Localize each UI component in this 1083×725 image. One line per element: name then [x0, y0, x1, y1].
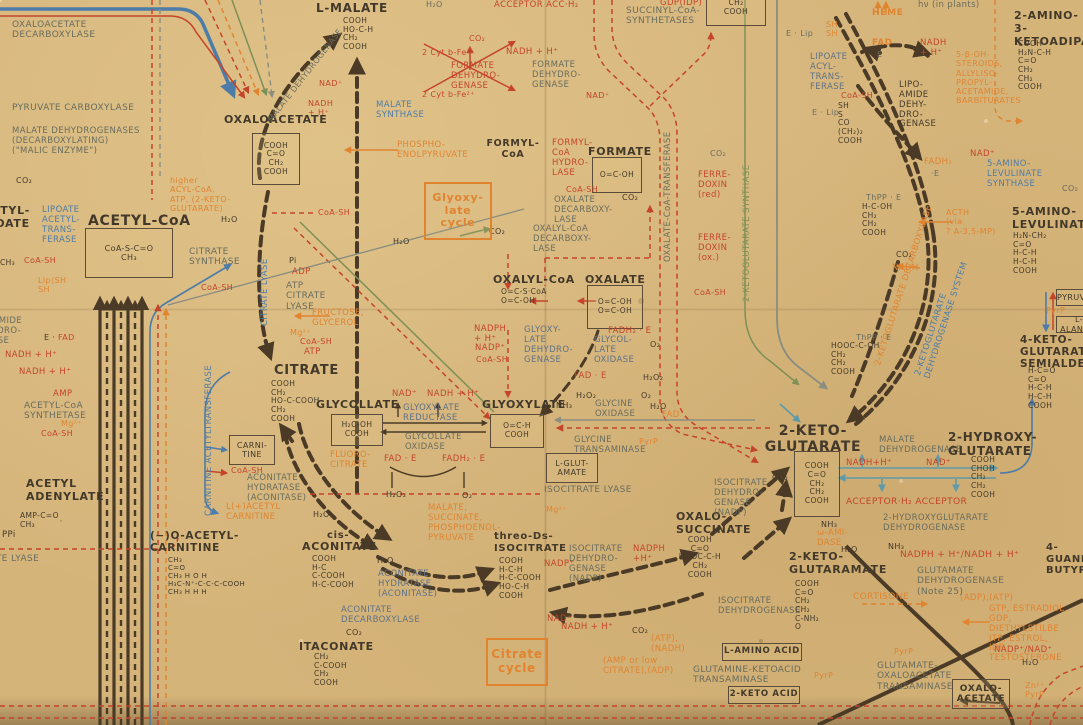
- lipoate-acyltransferase: LIPOATE ACYL- TRANS- FERASE: [810, 53, 847, 92]
- acetyl-adenylate-heading: ACETYL ADENYLATE: [26, 478, 104, 504]
- mg-isocitrate-lyase: Mg²⁺: [546, 505, 567, 514]
- nadh-left-edge: NADH + H⁺: [5, 351, 57, 361]
- acceptor-h2-acceptor: ACCEPTOR·H₂ ACCEPTOR: [846, 497, 967, 507]
- l-malate-formula: COOH HO-C-H CH₂ COOH: [343, 17, 373, 52]
- lipoamide-dehydrogenase-right: LIPO- AMIDE DEHY- DRO- GENASE: [899, 81, 936, 130]
- pyrp-glycine-t: PyrP: [639, 437, 658, 446]
- bundle-dashed: [107, 303, 135, 725]
- h2o-top: H₂O: [426, 0, 443, 9]
- formate-dehydrogenase-gray: FORMATE DEHYDRO- GENASE: [532, 61, 581, 91]
- e-lip-formula-label: E · Lip: [812, 108, 839, 117]
- nh3-glyoxylate: NH₃: [556, 401, 572, 410]
- glutamine-ketoacid-transaminase: GLUTAMINE-KETOACID TRANSAMINASE: [693, 665, 801, 686]
- keto-acid-box: 2-KETO ACID: [728, 686, 800, 704]
- atp-acl: ATP: [304, 348, 321, 358]
- citrate-formula: COOH CH₂ HO-C-COOH CH₂ COOH: [271, 380, 320, 423]
- nadph-glyox-dh: NADPH + H⁺: [474, 325, 506, 345]
- malate-dehydrogenases: MALATE DEHYDROGENASES (DECARBOXYLATING) …: [12, 127, 140, 157]
- carnitine-acetyltransferase: CARNITINE ACETYLTRANSFERASE: [205, 365, 215, 516]
- citrate-lyase-bottom: CITRATE LYASE: [0, 554, 39, 564]
- fructose-glycerol: FRUCTOSE, GLYCEROL: [312, 309, 364, 329]
- pyrp-right-edge: PyrP: [1046, 306, 1065, 315]
- acetyl-lipoate-heading: ACETYL- LIPOATE: [0, 205, 30, 231]
- citrate-synthase: CITRATE SYNTHASE: [189, 247, 240, 268]
- heme: HEME: [872, 8, 904, 18]
- carnitine-box: CARNI- TINE: [229, 435, 275, 465]
- fad-glycollate-ox2: FAD · E: [574, 372, 607, 382]
- zn-pyrp: Zn²⁺ PyrP: [1025, 681, 1045, 700]
- h2o-citrate-synthase: H₂O: [221, 215, 238, 224]
- ferredoxin-ox: FERRE- DOXIN (ox.): [698, 234, 731, 264]
- oxalyl-coa-formula: O=C-S·CoA O=C-OH: [501, 288, 547, 305]
- ferredoxin-red: FERRE- DOXIN (red): [698, 171, 731, 201]
- nadh-lipoamide: NADH + H⁺: [920, 39, 947, 59]
- amp-citrate-modifier: (AMP or low CITRATE),(ADP): [603, 657, 674, 677]
- co2-idh: CO₂: [632, 626, 648, 635]
- citrate-cycle-label: Citrate cycle: [486, 638, 548, 686]
- e-fad-lipoamide: E: [877, 50, 882, 59]
- nadh-gr: NADH + H⁺: [427, 390, 479, 400]
- coash-acs: CoA-SH: [41, 429, 73, 438]
- hydroxyglutarate-formula: COOH CHOH CH₂ CH₂ COOH: [971, 456, 995, 499]
- coash-ferredoxin: CoA-SH: [694, 288, 726, 297]
- lip-sh-left: Lip⟨SH SH: [38, 276, 66, 295]
- fadh2-go1: FADH₂ · E: [442, 455, 485, 465]
- atp-nadh-modifier: (ATP), (NADH): [651, 635, 685, 655]
- l-glutamate-box: L-GLUT- AMATE: [546, 453, 598, 483]
- l-alanine-box: L-ALANINE: [1056, 316, 1083, 333]
- oxalate-formula: O=C-OH O=C-OH: [587, 285, 643, 329]
- ketoglutarate-formula: COOH C=O CH₂ CH₂ COOH: [794, 451, 840, 517]
- fad-glycine-ox: FAD: [662, 411, 680, 421]
- glutamate-oxaloacetate-transaminase: GLUTAMATE- OXALOACETATE TRANSAMINASE: [877, 661, 953, 692]
- co2-mid: CO₂: [710, 149, 726, 158]
- l-malate-heading: L-MALATE: [316, 2, 388, 16]
- isocitrate-lyase: ISOCITRATE LYASE: [544, 485, 632, 495]
- glyoxylate-reductase: GLYOXYLATE REDUCTASE: [403, 404, 460, 424]
- glyoxylate-cycle-label: Glyoxy- late cycle: [424, 182, 492, 240]
- nad-formate: NAD⁺: [586, 91, 609, 100]
- nadp-nad-bottom: NADP⁺∕NAD⁺: [994, 646, 1052, 656]
- oxalate-coa-transferase: OXALATE-CoA-TRANSFERASE: [664, 132, 674, 262]
- thpp-adduct-formula-2: HOOC-C-OH CH₂ CH₂ COOH: [831, 342, 880, 377]
- nadph-idh2: NADPH +H⁺: [633, 545, 665, 565]
- fadh2-lipoamide: FADH₂: [924, 158, 952, 168]
- co2-os: CO₂: [772, 473, 788, 482]
- glyoxylate-heading: GLYOXYLATE: [482, 399, 566, 412]
- nadp-glyox-dh: NADP⁺: [475, 344, 505, 354]
- fad-lipoamide: FAD: [872, 39, 893, 49]
- nad-malate: NAD⁺: [319, 79, 342, 88]
- itaconate-heading: ITACONATE: [299, 641, 374, 654]
- succinyl-coa-synthetases: SUCCINYL-CoA- SYNTHETASES: [626, 6, 700, 27]
- co2-topleft: CO₂: [16, 176, 32, 185]
- nadh-formate: NADH + H⁺: [506, 48, 558, 58]
- o2-go1: O₂: [462, 491, 472, 500]
- lipoamide-dh-left: LIPOAMIDE DEHYDRO- GENASE: [0, 317, 22, 347]
- co2-ala: CO₂: [1062, 184, 1078, 193]
- fad-go1: FAD · E: [384, 455, 417, 465]
- isocitrate-dh-nadp-1: ISOCITRATE DEHYDRO- GENASE (NADP): [714, 479, 768, 518]
- itaconate-formula: CH₂ C-COOH CH₂ COOH: [314, 653, 347, 688]
- adp-atp-gdh: (ADP),(ATP): [960, 594, 1013, 604]
- glycine-oxidase: GLYCINE OXIDASE: [595, 400, 635, 420]
- ketoglutaramate-heading: 2-KETO- GLUTARAMATE: [789, 551, 887, 577]
- o-acetylcarnitine-heading: (−)O-ACETYL- CARNITINE: [150, 530, 239, 554]
- co2-formate: CO₂: [469, 34, 485, 43]
- isocitrate-formula: COOH H-C-H H-C-COOH HO-C-H COOH: [499, 557, 541, 600]
- oxaloacetate-formula: COOH C=O CH₂ COOH: [252, 133, 300, 185]
- isocitrate-dh-nadp-2: ISOCITRATE DEHYDRO- GENASE (NADP): [569, 545, 623, 584]
- h2o-aconitase1: H₂O: [313, 510, 330, 519]
- cis-aconitate-formula: COOH H-C C-COOH H-C-COOH: [312, 555, 354, 590]
- formyl-coa-hydrolase: FORMYL- CoA HYDRO- LASE: [552, 139, 592, 178]
- carnitine-formula: CH₃ C=O CH₃ H O H H₃C-N⁺-C-C-C-COOH CH₃ …: [168, 556, 245, 597]
- e-lip-formula: SH S CO (CH₂)₂ COOH: [838, 102, 863, 145]
- thpp-adduct-formula: H-C-OH CH₂ CH₂ COOH: [862, 203, 892, 238]
- pyruvate-box: PYRUVATE: [1056, 289, 1083, 306]
- glycollate-oxidase-2: GLYCOL- LATE OXIDASE: [594, 336, 634, 366]
- coash-carnitine: CoA-SH: [231, 466, 263, 475]
- acceptor-acc-h2: ACCEPTOR ACC·H₂: [494, 1, 579, 11]
- glycollate-oxidase-1: GLYCOLLATE OXIDASE: [405, 433, 462, 453]
- ketoglutaramate-formula: COOH C=O CH₂ CH₂ C-NH₂ O: [795, 580, 819, 632]
- ketoglutarate-synthase: 2-KETOGLUTARATE SYNTHASE: [743, 165, 753, 302]
- oxalosuccinate-formula: COOH C=O HOOC-C-H CH₂ COOH: [679, 536, 721, 579]
- pyruvate-carboxylase: PYRUVATE CARBOXYLASE: [12, 103, 134, 113]
- guanidinobutyrate: 4-GUANIDINO- BUTYRATE: [1046, 542, 1083, 577]
- h2o-bottom: H₂O: [1022, 658, 1039, 667]
- coash-glyox: CoA-SH: [318, 208, 350, 217]
- e-fadh2-lipoamide: ·E: [931, 169, 939, 178]
- mg-acs: Mg²⁺: [61, 419, 82, 428]
- threo-isocitrate-heading: threo-Ds- ISOCITRATE: [494, 531, 567, 554]
- amp-acs: AMP: [53, 390, 72, 400]
- h2o2-go1: H₂O₂: [386, 490, 406, 499]
- o2-go2b: O₂: [641, 391, 651, 400]
- fad-left: FAD: [58, 333, 75, 342]
- l-amino-acid-box: L-AMINO ACID: [722, 643, 802, 661]
- h2o-aconitase2: H₂O: [377, 556, 394, 565]
- nadp-idh2: NADP⁺: [544, 560, 574, 570]
- oxaloacetate-decarboxylase: OXALOACETATE DECARBOXYLASE: [12, 20, 95, 41]
- ala-heading: 5-AMINO- LEVULINATE: [1012, 206, 1083, 232]
- pi-acl: Pi: [289, 256, 297, 265]
- nadph-nadh-gdh: NADPH + H⁺∕NADH + H⁺: [900, 550, 1019, 560]
- e-lip-top: E · Lip: [786, 29, 813, 38]
- coash-left: CoA-SH: [24, 256, 56, 265]
- oxalyl-coa-decarboxylase: OXALYL-CoA DECARBOXY- LASE: [533, 225, 591, 255]
- thpp-top: ThPP · E: [866, 193, 902, 202]
- coash-glyox-dh: CoA-SH: [476, 355, 508, 364]
- h2o2-go2a: H₂O₂: [643, 373, 663, 382]
- phosphoenolpyruvate: PHOSPHO- ENOLPYRUVATE: [397, 141, 468, 161]
- biochemical-pathways-chart: OXALOACETATE DECARBOXYLASEPYRUVATE CARBO…: [0, 0, 1083, 725]
- lip-sh-top: SH SH: [826, 20, 838, 39]
- ppi: PPi: [2, 531, 16, 541]
- adp-acl: ADP: [292, 268, 311, 278]
- glycollate-formula: H₂C-OH COOH: [331, 414, 383, 446]
- lipoate-acetyltransferase: LIPOATE ACETYL- TRANS- FERASE: [42, 206, 80, 245]
- nadh-acs: NADH + H⁺: [19, 368, 71, 378]
- citrate-heading: CITRATE: [274, 363, 339, 378]
- o2-go2: O₂: [650, 340, 660, 349]
- acetyl-coa-formula: CoA-S-C=O CH₃: [85, 228, 173, 278]
- hydroxyglutarate-dh: 2-HYDROXYGLUTARATE DEHYDROGENASE: [883, 514, 989, 534]
- pyrp-got2: PyrP: [814, 671, 833, 680]
- acetyl-adenylate-formula: AMP-C=O CH₃: [20, 512, 59, 529]
- aconitase-1: ACONITATE HYDRATASE (ACONITASE): [247, 474, 306, 504]
- hv-in-plants: hν (in plants): [918, 1, 980, 11]
- coash-lipoamide: CoA-SH: [841, 91, 873, 100]
- fluoro-citrate: FLUORO- CITRATE: [330, 451, 371, 471]
- glycollate-heading: GLYCOLLATE: [316, 399, 399, 412]
- co2-od: CO₂: [622, 193, 638, 202]
- glyoxylate-formula: O=C-H COOH: [490, 414, 544, 448]
- h2o-glyox-cycle: H₂O: [393, 237, 410, 246]
- malate-synthase: MALATE SYNTHASE: [376, 101, 424, 121]
- h2o2-go2b: H₂O₂: [576, 391, 596, 400]
- cortisone: CORTISONE: [853, 592, 909, 602]
- acetyl-coa-heading: ACETYL-CoA: [88, 213, 191, 229]
- nadh-idh: NADH + H⁺: [561, 623, 613, 633]
- amino-ketoadipate-formula: COOH H₂N-C-H C=O CH₂ CH₂ COOH: [1018, 40, 1051, 92]
- coash-od: CoA-SH: [566, 185, 598, 194]
- nad-gr: NAD⁺: [392, 390, 417, 400]
- oxalate-decarboxylase: OXALATE DECARBOXY- LASE: [554, 196, 612, 226]
- nad-mdh-right: NAD⁺: [926, 459, 951, 469]
- ala-formula: H₂N-CH₂ C=O H-C-H H-C-H COOH: [1013, 232, 1047, 275]
- formate-formula: O=C-OH: [592, 157, 642, 193]
- citrate-lyase-vertical: CITRATE LYASE: [261, 258, 271, 326]
- nadh-malate: NADH + H⁺: [308, 99, 333, 118]
- co2-aconitate-dc: CO₂: [346, 628, 362, 637]
- steroids-inhibitors: 5-β-OH- STEROIDS, ALLYLISO- PROPYL- ACET…: [956, 50, 1021, 106]
- pyrp-got1: PyrP: [894, 647, 913, 656]
- cyt-b-fe2: 2 Cyt b-Fe²⁺: [422, 90, 475, 99]
- mg-acl: Mg²⁺: [290, 328, 311, 337]
- isocitrate-dh-2: ISOCITRATE DEHYDROGENASE: [718, 597, 801, 617]
- higher-acyl-coa: higher ACYL-CoA, ATP, (2-KETO- GLUTARATE…: [170, 176, 231, 213]
- coash-acl: CoA-SH: [300, 337, 332, 346]
- oxalyl-coa-heading: OXALYL-CoA: [493, 274, 575, 287]
- cyt-b-fe3: 2 Cyt b-Fe³⁺: [422, 48, 475, 57]
- formate-dehydrogenase-red: FORMATE DEHYDRO- GENASE: [451, 62, 500, 92]
- acetylcarnitine-orange: L(+)ACETYL CARNITINE: [226, 503, 281, 523]
- oxaloacetate-box-bottom: OXALO- ACETATE: [952, 679, 1010, 709]
- e-left: E ·: [44, 333, 55, 342]
- formyl-coa-heading: FORMYL- CoA: [486, 138, 539, 160]
- succinate-formula: CH₂ COOH: [706, 0, 766, 26]
- malate-succinate-pep: MALATE, SUCCINATE, PHOSPHOENOL- PYRUVATE: [428, 504, 501, 543]
- ch3-left-edge: CH₃: [0, 259, 15, 268]
- kg-semialdehyde-formula: H-C=O C=O H-C-H H-C-H COOH: [1028, 367, 1056, 410]
- ala-synthase: 5-AMINO- LEVULINATE SYNTHASE: [987, 160, 1042, 190]
- coash-citrate-synthase: CoA-SH: [201, 283, 233, 292]
- cis-aconitate-heading: ACONITATE: [302, 541, 377, 554]
- aconitase-2: ACONITATE HYDRATASE (ACONITASE): [378, 570, 437, 600]
- nadh-mdh-right: NADH+H⁺: [846, 459, 892, 469]
- aconitate-decarboxylase: ACONITATE DECARBOXYLASE: [341, 606, 420, 626]
- glyoxylate-dehydrogenase: GLYOXY- LATE DEHYDRO- GENASE: [524, 326, 573, 365]
